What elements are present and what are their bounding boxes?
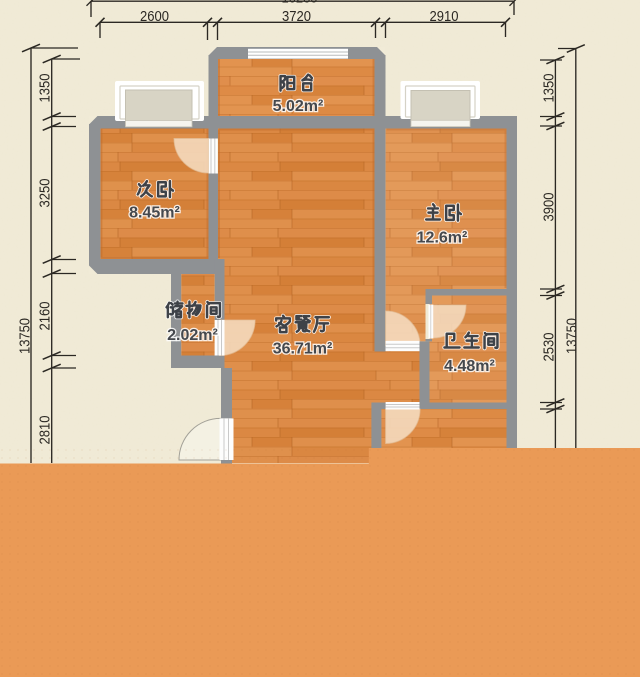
svg-text:3250: 3250 [38,179,54,208]
svg-text:10230: 10230 [282,0,318,7]
svg-text:1350: 1350 [542,74,558,103]
svg-text:36.71m²: 36.71m² [273,341,333,358]
svg-text:8.45m²: 8.45m² [129,205,180,222]
svg-text:13750: 13750 [18,318,34,354]
svg-text:1350: 1350 [38,74,54,103]
svg-text:2530: 2530 [542,333,558,362]
svg-text:5.02m²: 5.02m² [273,98,324,115]
svg-text:2910: 2910 [430,9,459,25]
svg-text:13750: 13750 [565,318,581,354]
svg-text:3900: 3900 [542,193,558,222]
svg-text:3720: 3720 [282,9,311,25]
svg-text:12.6m²: 12.6m² [417,230,468,247]
svg-text:2810: 2810 [38,416,54,445]
svg-text:2.02m²: 2.02m² [167,327,218,344]
svg-text:2160: 2160 [38,302,54,331]
svg-text:4.48m²: 4.48m² [444,358,495,375]
svg-text:2600: 2600 [140,9,169,25]
